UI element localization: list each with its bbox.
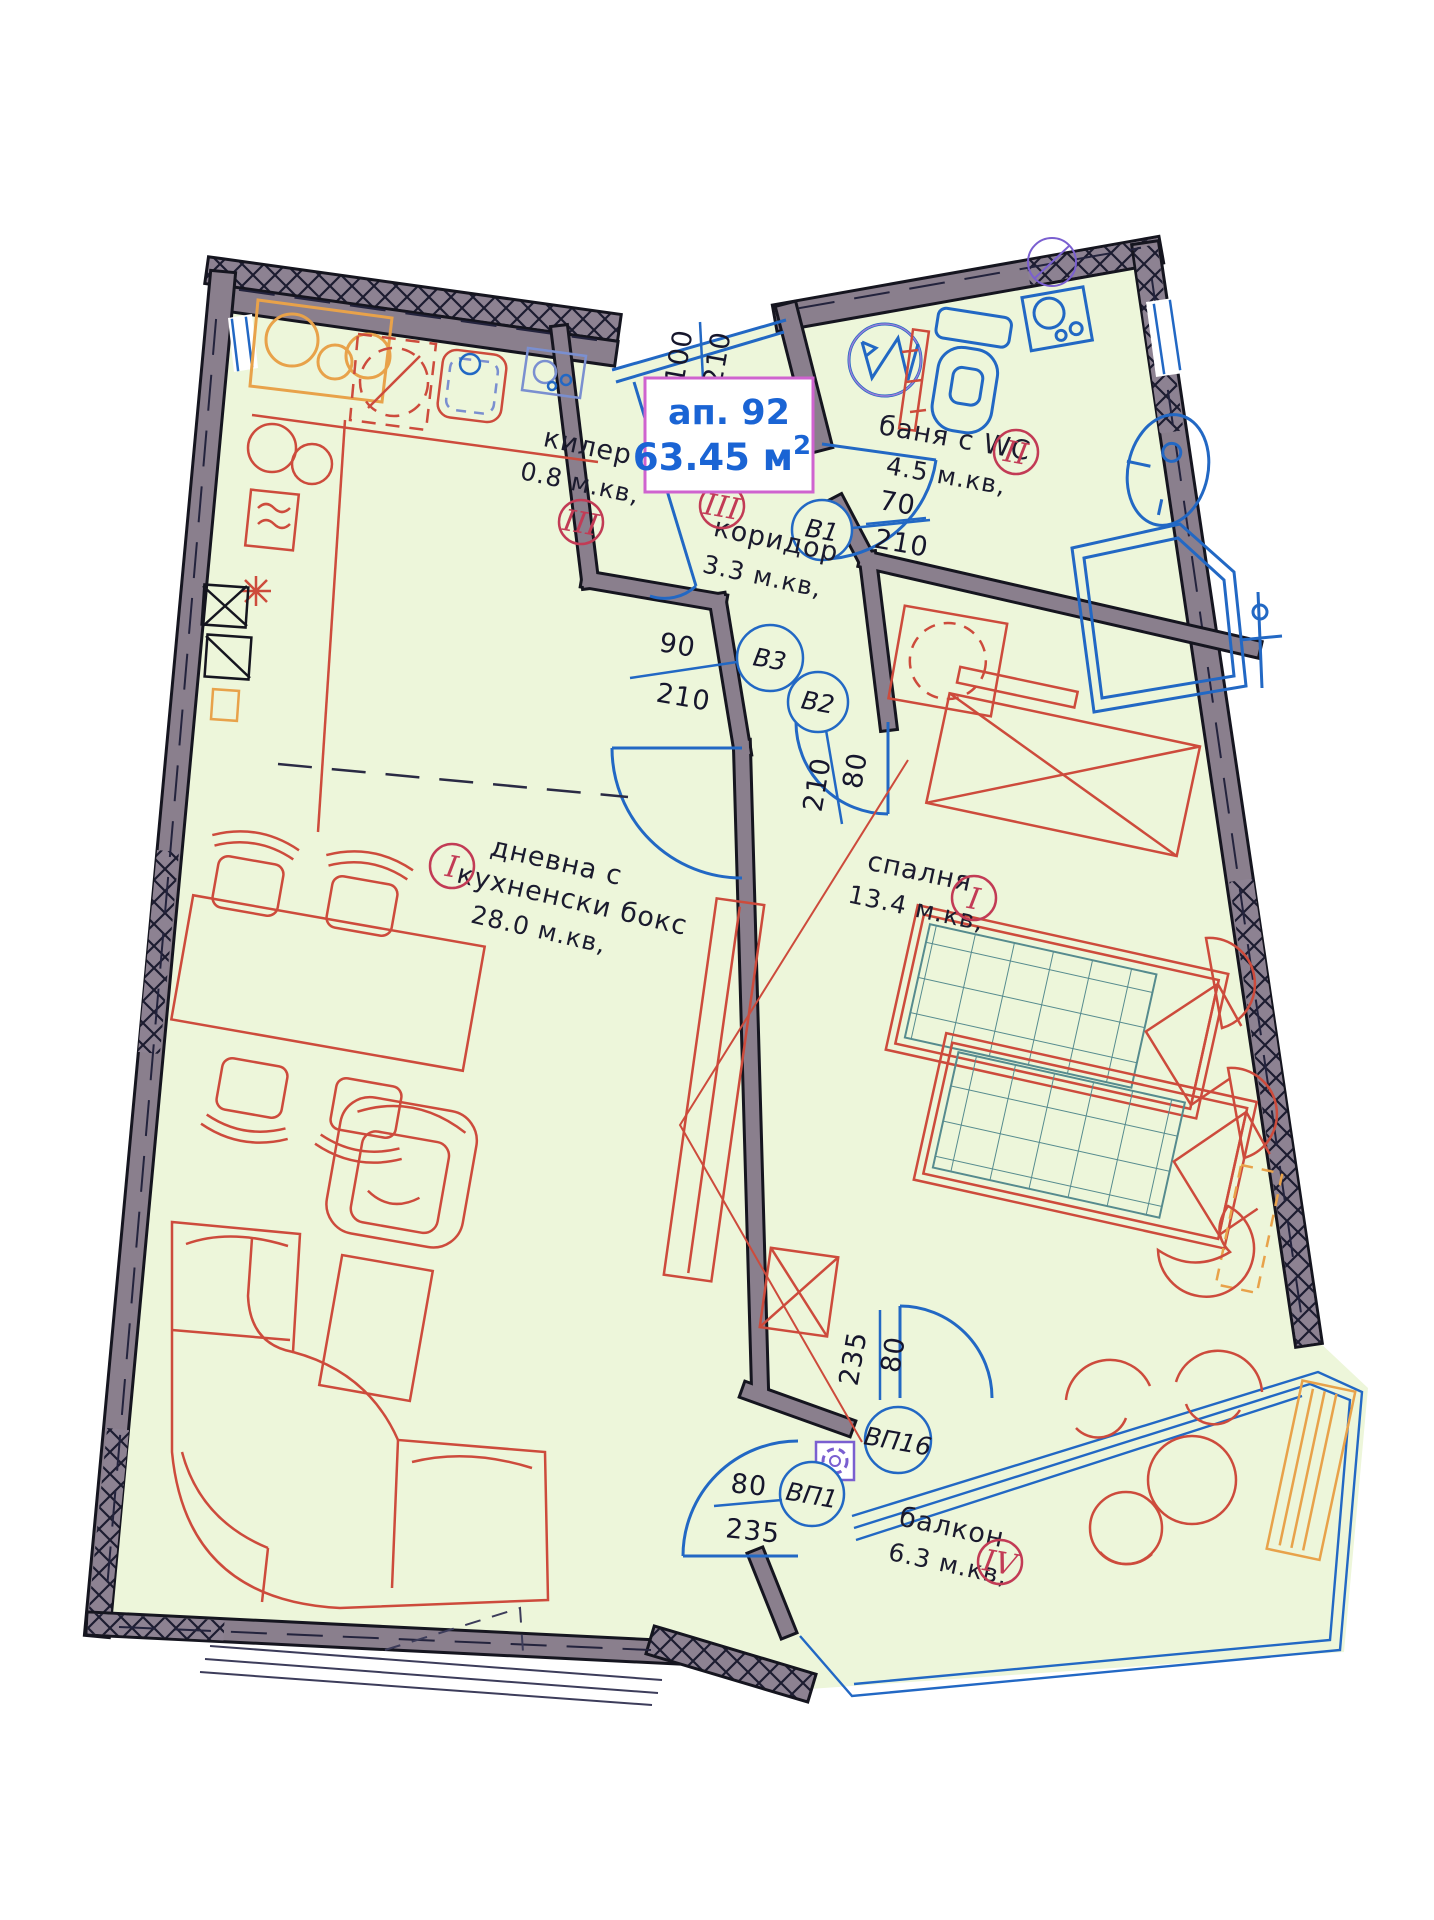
floorplan-page: В1 70 210 В3 90 210 В2 80 210 ВП16 80 23… [0, 0, 1434, 1920]
svg-text:235: 235 [724, 1513, 781, 1550]
apartment-number: ап. 92 [668, 393, 790, 433]
svg-text:В3: В3 [751, 642, 789, 676]
svg-text:80: 80 [837, 750, 874, 791]
title-box: ап. 92 63.45 м2 [633, 378, 813, 492]
apartment-area: 63.45 м2 [633, 431, 811, 479]
floorplan-drawing: В1 70 210 В3 90 210 В2 80 210 ВП16 80 23… [0, 0, 1434, 1920]
numeral-balcony: IV [978, 1540, 1023, 1584]
numeral-closet: III [559, 500, 603, 544]
svg-text:80: 80 [729, 1468, 768, 1503]
svg-text:70: 70 [877, 485, 918, 522]
svg-text:III: III [559, 503, 602, 544]
svg-text:В2: В2 [799, 685, 837, 719]
asterisk-symbol [241, 576, 271, 606]
svg-text:90: 90 [657, 627, 698, 664]
svg-text:80: 80 [875, 1334, 912, 1375]
